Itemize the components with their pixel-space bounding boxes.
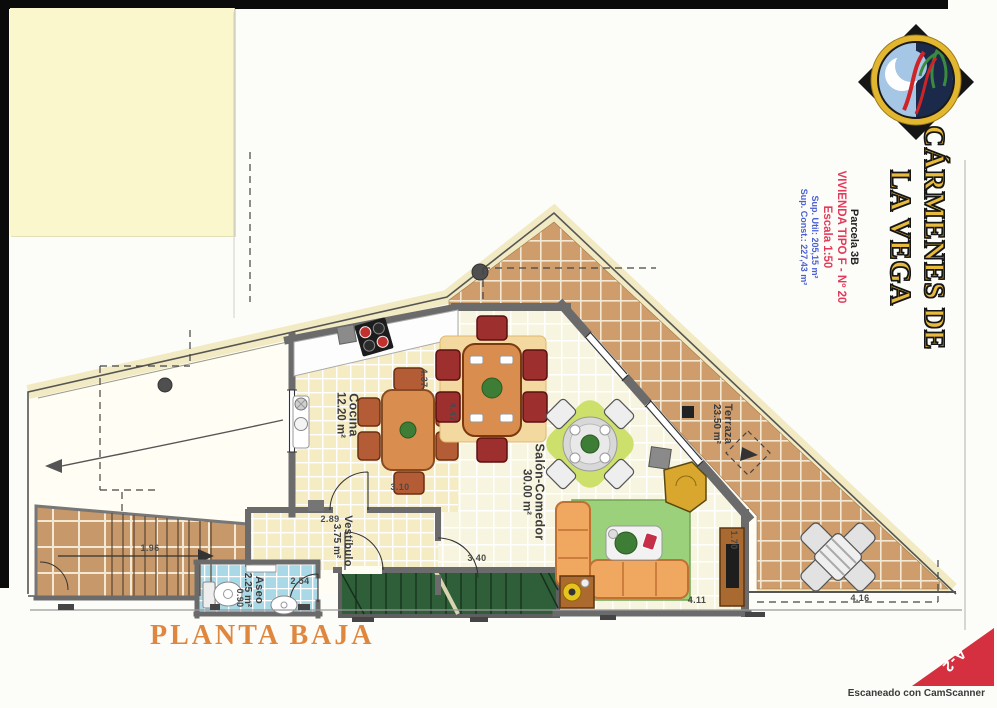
dim-416: 4.16 bbox=[850, 593, 869, 603]
side-table-lamp bbox=[560, 576, 594, 608]
dim-090: 0.90 bbox=[235, 588, 245, 607]
vivienda-label: VIVIENDA TIPO F - Nº 20 bbox=[833, 145, 847, 329]
brand-title: CÁRMENES DE LA VEGA bbox=[859, 113, 951, 363]
room-label-cocina: Cocina 12.20 m² bbox=[334, 392, 361, 438]
driveway-column bbox=[158, 378, 172, 392]
dim-411: 4.11 bbox=[688, 595, 707, 605]
room-label-salon: Salón-Comedor 30.00 m² bbox=[520, 444, 547, 541]
dim-289: 2.89 bbox=[320, 514, 339, 524]
parcela-label: Parcela 3B bbox=[847, 145, 860, 329]
kitchen-sink-icon bbox=[293, 396, 309, 448]
porch-column bbox=[472, 264, 488, 280]
escala-label: Escala 1:50 bbox=[820, 145, 834, 329]
green-staircase bbox=[340, 570, 558, 616]
dim-447: 4.47 bbox=[448, 402, 458, 421]
sup-const-label: Sup. Const.: 227,43 m² bbox=[797, 145, 808, 329]
dim-437: 4.37 bbox=[419, 368, 429, 387]
sink-icon bbox=[271, 596, 297, 614]
dim-196: 1.96 bbox=[140, 543, 159, 553]
dim-310: 3.10 bbox=[390, 482, 409, 492]
sofa-left bbox=[556, 502, 590, 586]
room-label-terraza: Terraza 23.50 m² bbox=[710, 404, 734, 444]
round-table bbox=[541, 395, 640, 494]
dining-table bbox=[436, 316, 547, 462]
terrace-column bbox=[682, 406, 694, 418]
dim-340: 3.40 bbox=[467, 553, 486, 563]
page-title: PLANTA BAJA bbox=[150, 620, 375, 652]
dim-254: 2.54 bbox=[290, 576, 309, 586]
sofa-bottom bbox=[590, 560, 688, 598]
scanned-floor-plan-page: Cocina 12.20 m² Salón-Comedor 30.00 m² V… bbox=[0, 0, 997, 708]
scanner-watermark: Escaneado con CamScanner bbox=[700, 688, 985, 699]
floor-plan-drawing bbox=[0, 0, 997, 708]
dim-170: 1.70 bbox=[729, 530, 739, 549]
title-block-info: Parcela 3B VIVIENDA TIPO F - Nº 20 Escal… bbox=[794, 145, 860, 329]
sup-util-label: Sup. Util: 205,15 m² bbox=[809, 145, 820, 329]
coffee-table bbox=[606, 526, 662, 560]
